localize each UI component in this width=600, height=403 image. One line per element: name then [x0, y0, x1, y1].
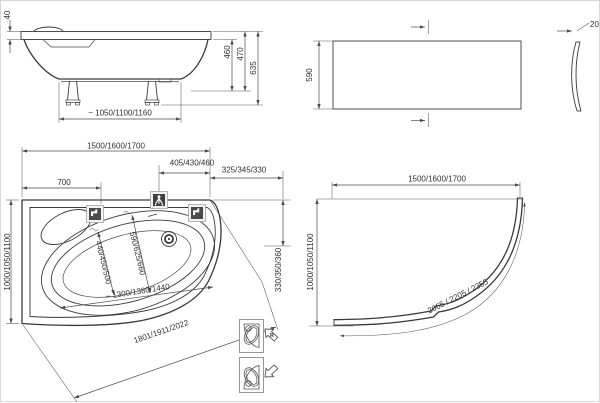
dim-label-height-635: 635	[249, 61, 258, 75]
front-panel-view: 590 20	[305, 20, 599, 127]
apron-plan-view: 1500/1600/1700 1000/1050/1100 2065 / 220…	[306, 175, 525, 336]
faucet-icon-right	[189, 205, 206, 222]
bathtub-plan-view: 1801/1911/2022	[3, 142, 291, 403]
dim-mixer-offset: 405/430/460	[159, 159, 215, 192]
dim-label-height-460: 460	[223, 45, 232, 59]
dim-rim-thickness: 40	[3, 10, 21, 53]
panel-edge-profile	[572, 42, 581, 111]
arrow-down-left-icon	[261, 363, 279, 381]
technical-drawing-canvas: 40 460 470 635 ~ 1050/1100/1160	[0, 0, 600, 402]
right-version-label: R	[270, 333, 274, 339]
corner-tub-right-icon: R	[240, 320, 280, 353]
dim-label-rim-thickness: 40	[3, 10, 12, 19]
break-mark	[90, 228, 98, 231]
dim-label-panel-height: 590	[305, 68, 314, 82]
dim-label-inner-width-small: 440/450/500	[94, 240, 114, 286]
dim-plan-width: 1500/1600/1700	[22, 142, 210, 198]
dim-label-leg-spacing: ~ 1050/1100/1160	[88, 109, 152, 118]
dim-label-outer-front-length: 1801/1911/2022	[133, 318, 191, 345]
dim-label-panel-thickness: 20	[590, 20, 599, 29]
dim-label-inner-front-length: ~ 1300/1380/1440	[105, 282, 171, 301]
dim-inner-width-small: 440/450/500	[90, 228, 114, 295]
dim-inner-front-length: ~ 1300/1380/1440	[60, 282, 213, 308]
dim-label-tap-offset: 700	[57, 178, 71, 187]
mixer-tap-icon	[151, 192, 168, 209]
faucet-icon-left	[87, 206, 104, 223]
dim-label-corner-offset: 325/345/330	[222, 166, 267, 175]
dim-side-depth: 330/350/360	[213, 200, 291, 292]
dim-label-apron-arc-length: 2065 / 2205 / 2355	[426, 277, 490, 316]
dim-label-height-470: 470	[236, 47, 245, 61]
dim-apron-depth: 1000/1050/1100	[306, 199, 353, 326]
dim-heights: 460 470 635	[161, 32, 263, 106]
tub-leg-left	[66, 81, 80, 105]
tub-leg-right	[145, 81, 159, 105]
dim-label-mixer-offset: 405/430/460	[170, 159, 215, 168]
dim-label-apron-width: 1500/1600/1700	[408, 175, 466, 184]
dim-apron-arc-length: 2065 / 2205 / 2355	[340, 203, 525, 336]
drain-icon	[162, 232, 177, 247]
dim-label-plan-width: 1500/1600/1700	[87, 142, 145, 151]
corner-tub-left-icon	[240, 358, 280, 393]
side-elevation-view: 40 460 470 635 ~ 1050/1100/1160	[3, 10, 263, 123]
orientation-pictograms: R	[240, 320, 280, 393]
dim-panel-height: 590	[305, 41, 333, 109]
tub-rim-side	[21, 32, 211, 40]
panel-front-rect	[333, 41, 521, 109]
panel-center-mark-bottom	[411, 113, 429, 127]
dim-label-inner-width-large: 590/625/660	[128, 231, 148, 277]
panel-center-mark-top	[411, 20, 429, 34]
basin-profile	[43, 40, 95, 48]
dim-label-side-depth: 330/350/360	[274, 247, 283, 292]
headrest-profile	[34, 27, 63, 32]
bathtub-technical-drawing: 40 460 470 635 ~ 1050/1100/1160	[1, 1, 600, 403]
dim-corner-offset: 325/345/330	[210, 166, 283, 200]
jet-mark	[148, 214, 157, 217]
dim-plan-depth: 1000/1050/1100	[3, 200, 19, 324]
dim-apron-width: 1500/1600/1700	[332, 175, 520, 199]
dim-label-plan-depth: 1000/1050/1100	[3, 233, 12, 291]
dim-panel-thickness: 20	[557, 20, 599, 31]
tub-shell-outline	[24, 40, 208, 80]
dim-label-apron-depth: 1000/1050/1100	[306, 233, 315, 291]
